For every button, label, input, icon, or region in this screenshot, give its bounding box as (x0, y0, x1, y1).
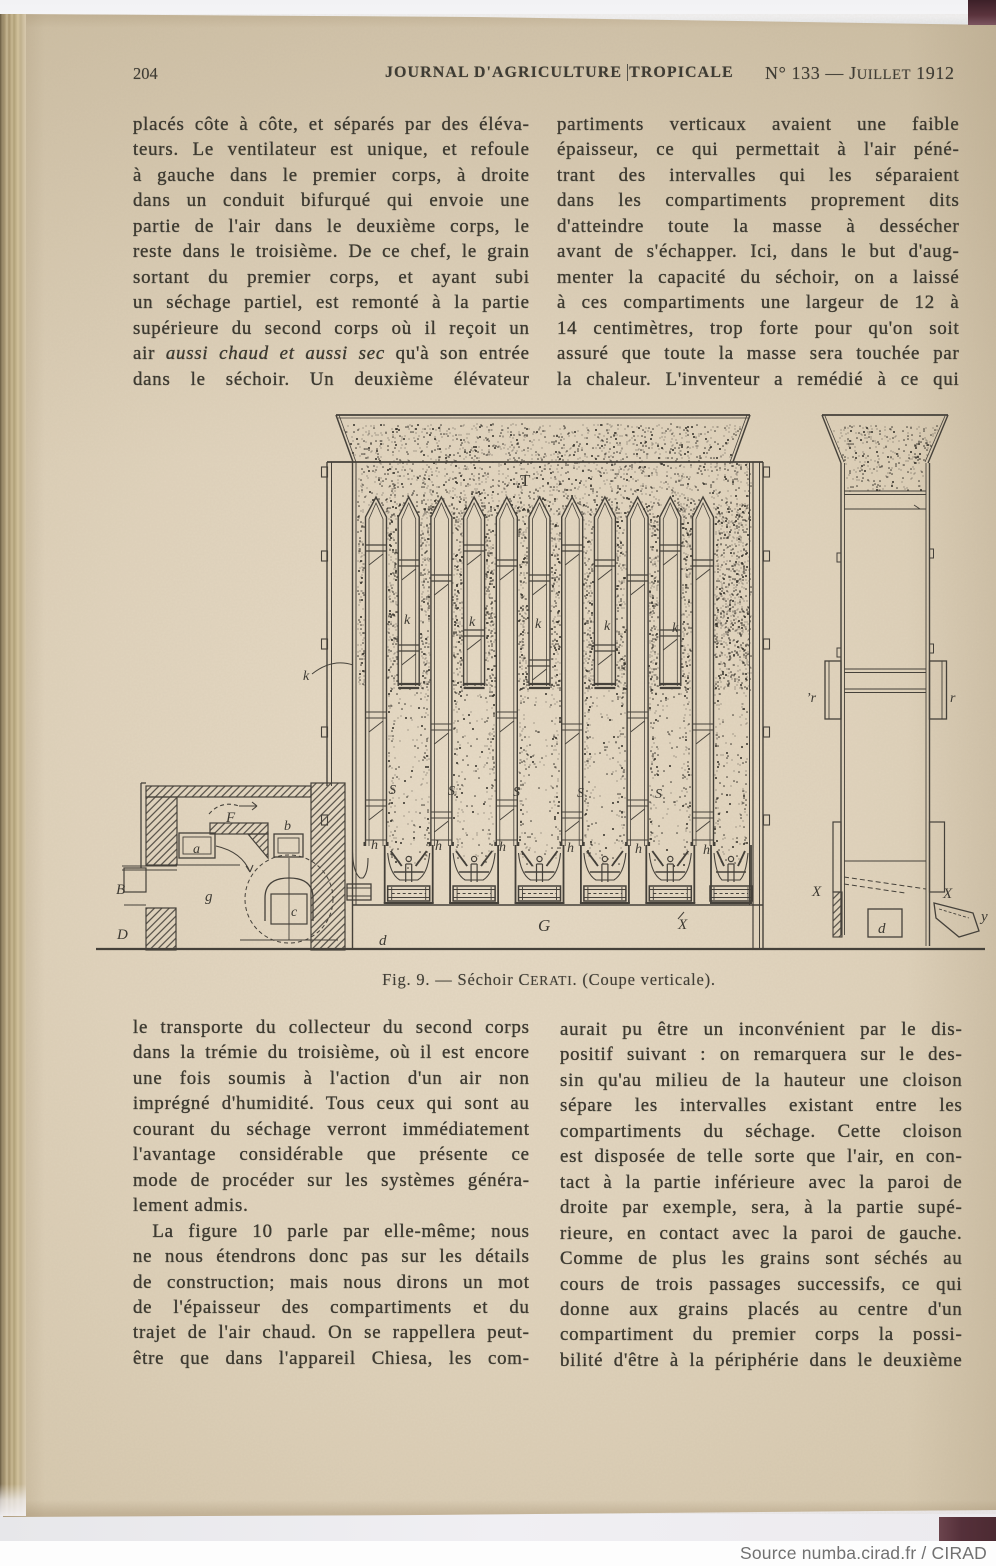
svg-text:S: S (389, 783, 396, 798)
svg-text:X: X (811, 884, 822, 900)
svg-text:b: b (284, 819, 291, 834)
svg-text:F: F (225, 810, 236, 826)
svg-text:h: h (499, 840, 506, 855)
svg-text:d: d (878, 921, 886, 937)
svg-text:k: k (604, 619, 611, 634)
svg-text:X: X (677, 917, 688, 933)
svg-text:h: h (371, 838, 378, 853)
svg-text:g: g (205, 889, 213, 905)
svg-text:k: k (404, 613, 411, 628)
svg-text:y: y (979, 909, 988, 925)
svg-text:r: r (950, 691, 956, 706)
svg-text:G: G (538, 916, 550, 935)
svg-text:S: S (448, 784, 455, 799)
svg-text:c: c (291, 905, 298, 920)
svg-text:k: k (672, 621, 679, 636)
svg-text:S: S (513, 785, 520, 800)
svg-text:k: k (535, 617, 542, 632)
svg-text:D: D (116, 927, 128, 943)
svg-text:k: k (303, 669, 310, 684)
svg-text:h: h (703, 843, 710, 858)
svg-text:S: S (655, 787, 662, 802)
svg-text:h: h (567, 841, 574, 856)
svg-text:B: B (116, 882, 125, 898)
svg-text:X: X (942, 886, 953, 902)
svg-text:h: h (635, 842, 642, 857)
svg-text:a: a (193, 842, 200, 857)
svg-text:k: k (469, 615, 476, 630)
svg-text:d: d (379, 933, 387, 949)
svg-text:h: h (435, 839, 442, 854)
svg-text:T: T (520, 471, 531, 490)
svg-text:S: S (577, 786, 584, 801)
svg-text:ʼr: ʼr (806, 691, 817, 706)
